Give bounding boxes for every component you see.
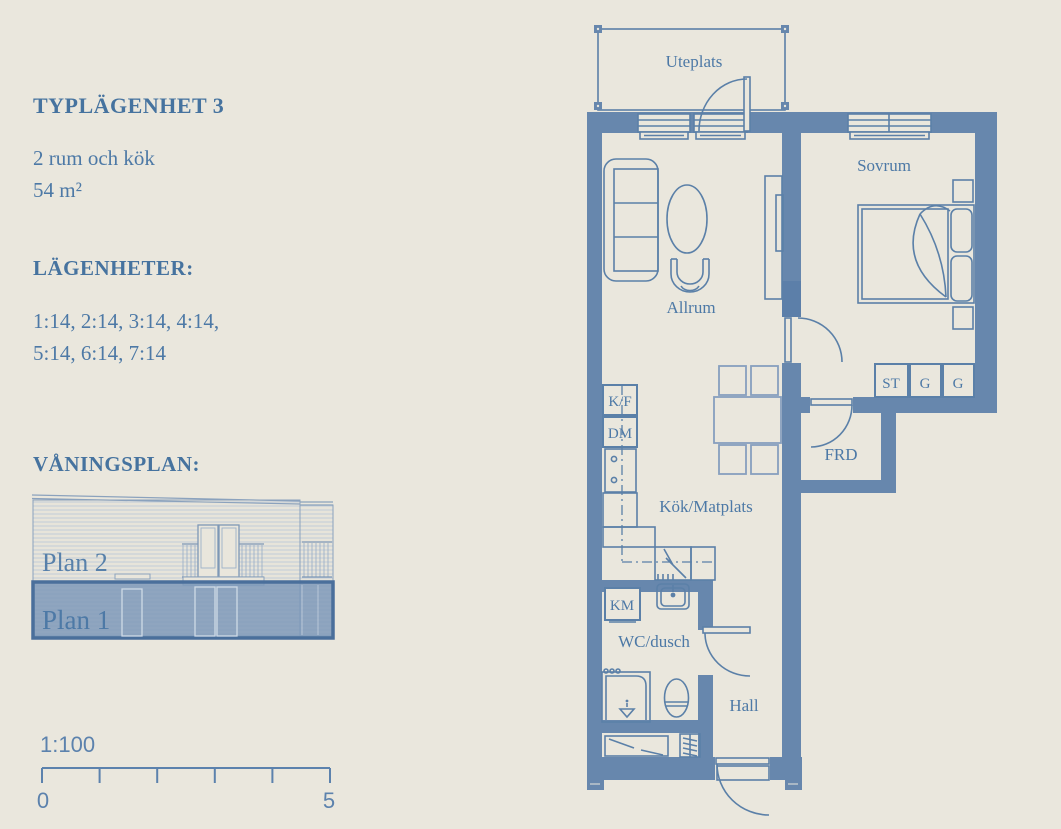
- window-allrum-right: [694, 114, 747, 139]
- bathroom-fixtures: KM: [602, 584, 689, 722]
- pillow: [951, 256, 972, 301]
- floorplan-sheet: TYPLÄGENHET 3 2 rum och kök 54 m² LÄGENH…: [0, 0, 1061, 829]
- room-label-allrum: Allrum: [666, 298, 715, 317]
- dining-chair: [719, 445, 746, 474]
- apartments-list-line2: 5:14, 6:14, 7:14: [33, 337, 166, 369]
- plan2-label: Plan 2: [42, 548, 108, 577]
- room-label-uteplats: Uteplats: [666, 52, 723, 71]
- dishwasher-label: DM: [608, 426, 632, 442]
- dining-chair: [719, 366, 746, 395]
- dining-table: [714, 397, 781, 443]
- kitchen-fixtures: K/F DM: [603, 385, 715, 580]
- apartments-heading: LÄGENHETER:: [33, 256, 194, 281]
- nightstand: [953, 307, 973, 329]
- bed: [858, 205, 974, 303]
- coffee-table: [667, 185, 707, 253]
- scale-ruler: [42, 768, 330, 783]
- counter-end: [691, 547, 715, 580]
- plan1-label: Plan 1: [42, 605, 110, 635]
- stove: [605, 449, 636, 492]
- room-label-kok: Kök/Matplats: [659, 497, 753, 516]
- counter-corner: [603, 527, 655, 547]
- pillow: [951, 209, 972, 252]
- sofa: [604, 159, 658, 281]
- coat-rack: [680, 734, 700, 757]
- drain-icon: [620, 709, 634, 717]
- dining-chair: [751, 366, 778, 395]
- shower: [602, 669, 650, 722]
- scale-start-label: 0: [37, 788, 49, 813]
- room-label-frd: FRD: [824, 445, 857, 464]
- floors-heading: VÅNINGSPLAN:: [33, 452, 200, 477]
- armchair: [671, 259, 709, 292]
- closet-label-st: ST: [882, 376, 900, 392]
- scale-ratio-label: 1:100: [40, 732, 95, 757]
- apartments-list-line1: 1:14, 2:14, 3:14, 4:14,: [33, 305, 219, 337]
- apartment-size-area: 54 m²: [33, 174, 82, 206]
- apartment-size-rooms: 2 rum och kök: [33, 142, 155, 174]
- dining-chair: [751, 445, 778, 474]
- room-label-hall: Hall: [729, 696, 759, 715]
- entrance-door: [716, 758, 769, 815]
- nightstand: [953, 180, 973, 202]
- tv-bench: [765, 176, 783, 299]
- counter: [603, 493, 637, 527]
- toilet: [665, 679, 689, 717]
- page-title: TYPLÄGENHET 3: [33, 93, 224, 119]
- room-label-sovrum: Sovrum: [857, 156, 911, 175]
- building-elevation: Plan 2 Plan 1: [30, 485, 350, 655]
- fridge-freezer-label: K/F: [608, 394, 631, 410]
- washing-machine-label: KM: [610, 598, 634, 614]
- scale-end-label: 5: [323, 788, 335, 813]
- window-allrum-left: [638, 114, 690, 139]
- room-label-wc: WC/dusch: [618, 632, 690, 651]
- scale-bar: 1:100 0 5: [30, 726, 350, 816]
- sink-unit: [655, 547, 691, 580]
- facade-ledge: [115, 574, 150, 579]
- hall-closet: [605, 736, 668, 756]
- closet-label-g2: G: [953, 376, 964, 392]
- dining-set: [714, 366, 781, 474]
- bedroom-closets: ST G G: [875, 364, 974, 397]
- closet-label-g1: G: [920, 376, 931, 392]
- floor-plan: Uteplats: [555, 0, 1061, 829]
- walls: [587, 112, 997, 790]
- window-sovrum: [848, 114, 931, 139]
